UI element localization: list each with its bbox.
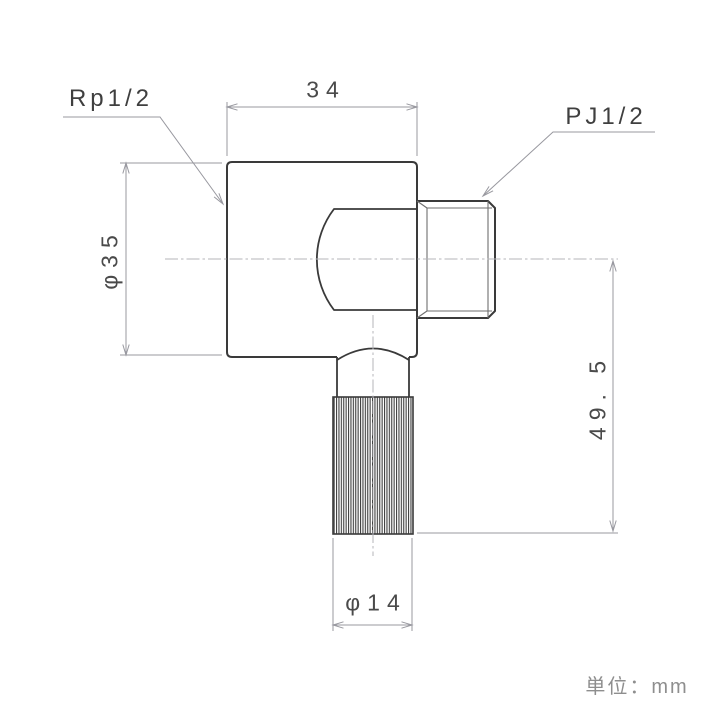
unit-note: 単位：mm	[585, 677, 688, 697]
dim-text-top-width: 34	[306, 79, 346, 102]
drawing-sheet: Rp1/2 PJ1/2 34 φ35 49. 5 φ14 単位：mm	[0, 0, 720, 720]
dim-text-right-height: 49. 5	[587, 354, 610, 440]
left-thread-label: Rp1/2	[69, 87, 153, 111]
dimension-34	[227, 102, 417, 156]
right-thread-label: PJ1/2	[565, 105, 646, 129]
leader-pj	[483, 132, 655, 196]
leader-rp	[63, 117, 223, 204]
dim-text-left-diameter: φ35	[99, 228, 122, 290]
dim-text-bottom-diameter: φ14	[345, 592, 407, 615]
